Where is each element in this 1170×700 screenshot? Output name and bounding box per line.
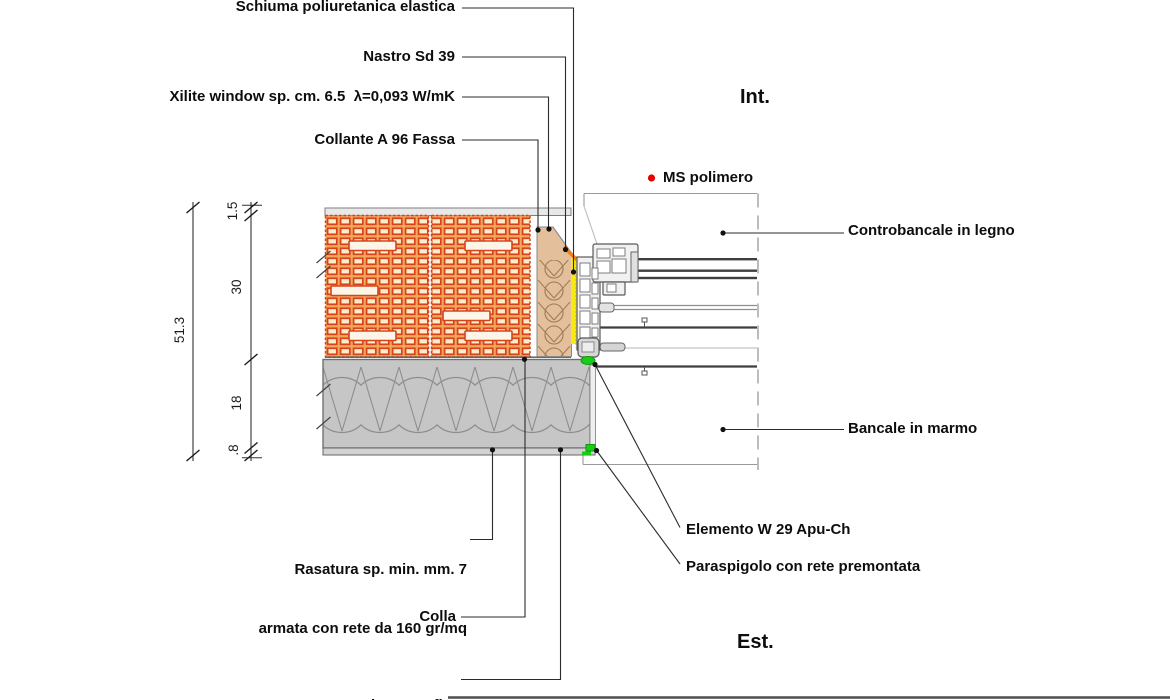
detail-drawing-page: Schiuma poliuretanica elastica Nastro Sd…: [0, 0, 1170, 700]
foam-gap-edge: [584, 206, 597, 244]
dim-value-plaster: 1.5: [224, 186, 242, 236]
dim-value-total: 51.3: [171, 305, 189, 355]
interior-plaster-layer: [325, 208, 571, 216]
brick-wall: [325, 216, 571, 358]
callout-rasatura: Rasatura sp. min. mm. 7 armata con rete …: [259, 521, 467, 658]
callout-nastro: Nastro Sd 39: [363, 47, 455, 67]
bancale-bottom-line: [583, 452, 757, 465]
side-label-interior: Int.: [740, 87, 770, 107]
callout-schiuma: Schiuma poliuretanica elastica: [236, 0, 455, 17]
leader-rasatura: [470, 452, 493, 540]
frame-rail-line-1: [638, 258, 757, 260]
callout-xilite: Xilite window sp. cm. 6.5 λ=0,093 W/mK: [169, 87, 455, 107]
side-label-exterior: Est.: [737, 632, 774, 652]
frame-connector: [631, 252, 638, 282]
frame-rail-line-3: [638, 277, 757, 279]
leader-elemento: [595, 365, 680, 528]
callout-collante: Collante A 96 Fassa: [314, 130, 455, 150]
callout-eps: EPS caricato grafite sp. cm. 18 λ=0,031 …: [274, 662, 456, 700]
frame-lug: [599, 303, 614, 312]
dim-value-eps: 18: [228, 378, 246, 428]
callout-paraspigolo: Paraspigolo con rete premontata: [686, 557, 920, 577]
callout-rasatura-line1: Rasatura sp. min. mm. 7: [259, 560, 467, 580]
edge-element-strip: [590, 365, 596, 448]
render-layer: [323, 448, 595, 455]
ms-polimero-legend-dot: [648, 174, 655, 181]
frame-rail-line-2: [638, 270, 757, 272]
dim-value-render: .8: [225, 425, 243, 475]
leader-paraspigolo: [597, 451, 681, 565]
eps-hatch: [323, 360, 590, 449]
callout-colla: Colla: [419, 607, 456, 627]
callout-elemento: Elemento W 29 Apu-Ch: [686, 520, 850, 540]
eps-insulation: [323, 360, 596, 456]
callout-bancale: Bancale in marmo: [848, 419, 977, 439]
corner-bead-marker-2: [582, 452, 591, 456]
dim-value-brick: 30: [228, 262, 246, 312]
callout-ms-polimero: MS polimero: [663, 168, 753, 188]
leader-eps: [461, 452, 561, 680]
callout-controbancale: Controbancale in legno: [848, 221, 1015, 241]
frame-foot-chamber: [582, 342, 594, 352]
sill-fixing-profile: [600, 343, 625, 351]
corner-bead-marker: [586, 445, 595, 452]
subsill-thin-lines: [614, 306, 757, 310]
dim-ticks: [187, 202, 258, 461]
dimension-lines: [187, 202, 263, 461]
